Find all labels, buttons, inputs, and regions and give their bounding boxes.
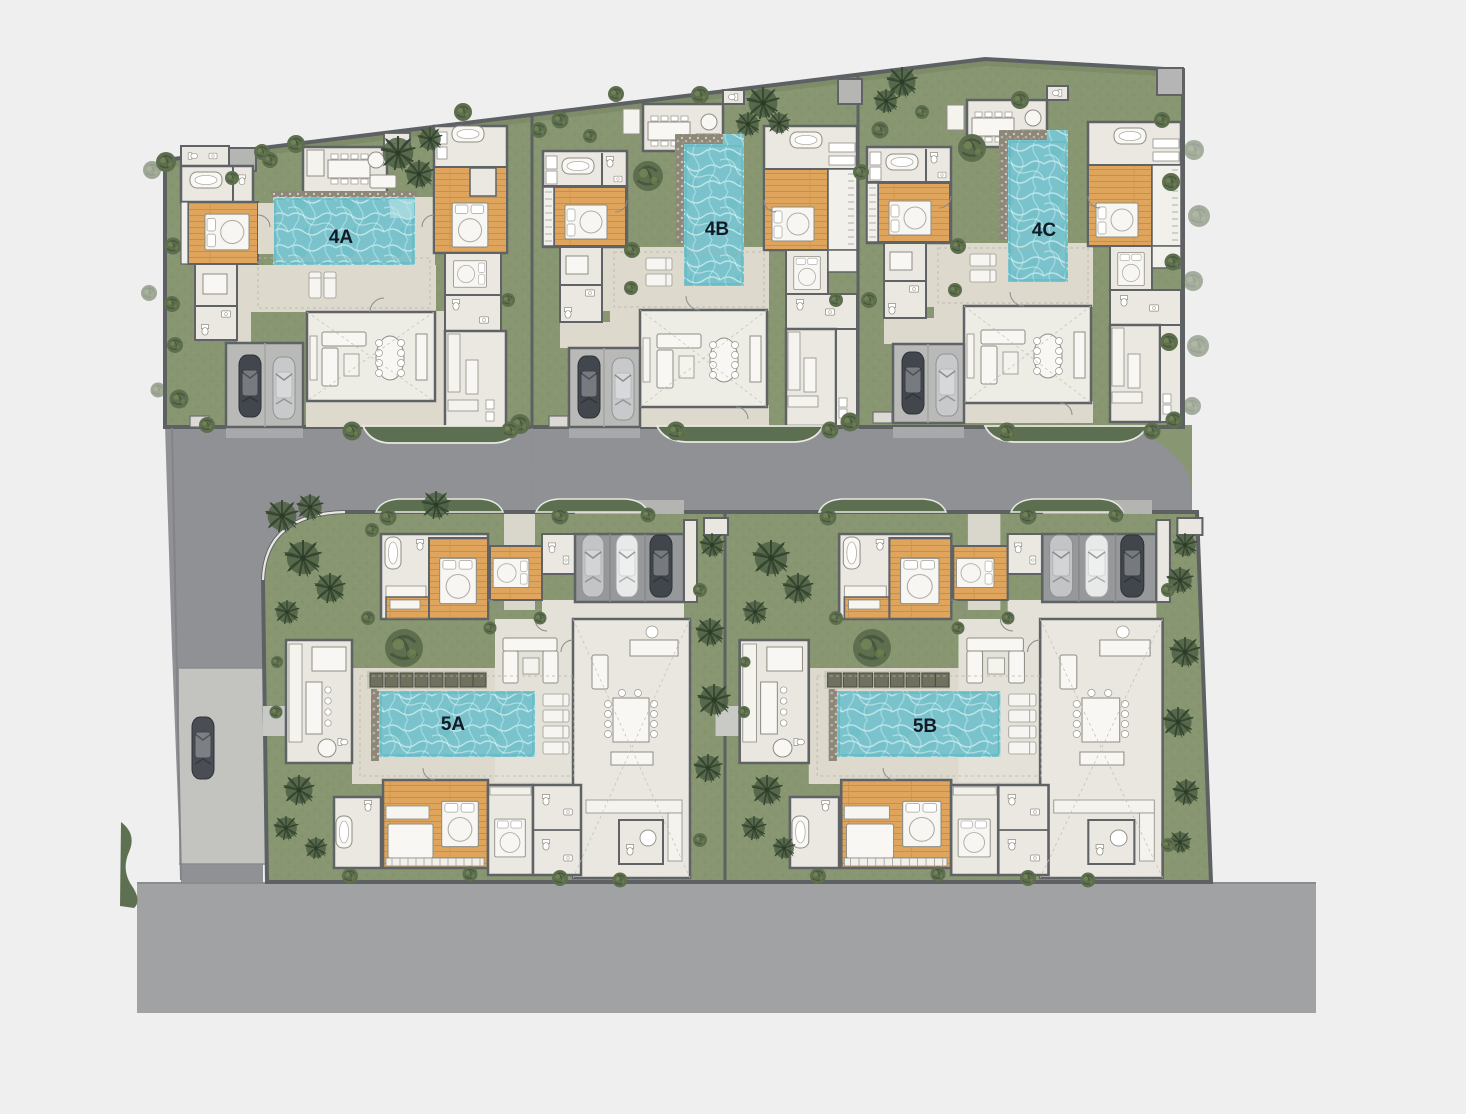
svg-text:4B: 4B	[705, 219, 729, 240]
svg-text:5B: 5B	[913, 716, 937, 737]
svg-text:4A: 4A	[329, 227, 354, 248]
svg-text:4C: 4C	[1032, 220, 1057, 241]
svg-text:5A: 5A	[441, 714, 466, 735]
